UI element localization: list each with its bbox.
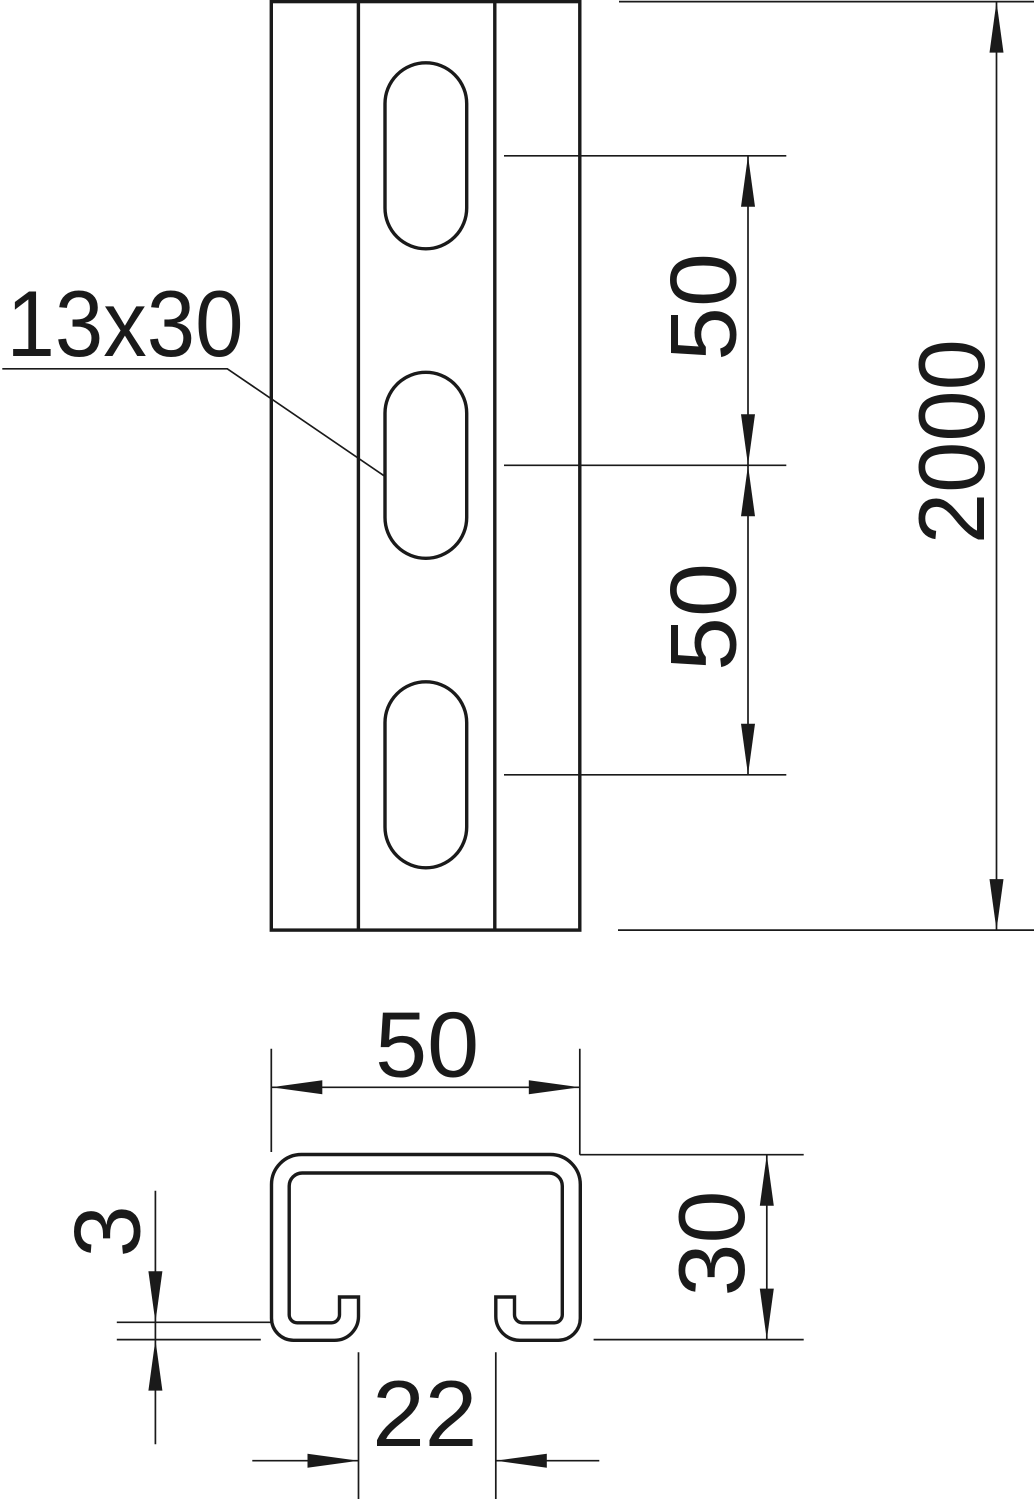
svg-text:50: 50 (651, 563, 756, 671)
svg-text:30: 30 (659, 1191, 764, 1297)
svg-text:50: 50 (375, 993, 479, 1097)
svg-text:22: 22 (372, 1361, 477, 1466)
svg-text:50: 50 (651, 253, 756, 361)
svg-text:3: 3 (55, 1205, 160, 1257)
svg-text:2000: 2000 (899, 339, 1004, 544)
svg-text:13x30: 13x30 (7, 271, 244, 376)
